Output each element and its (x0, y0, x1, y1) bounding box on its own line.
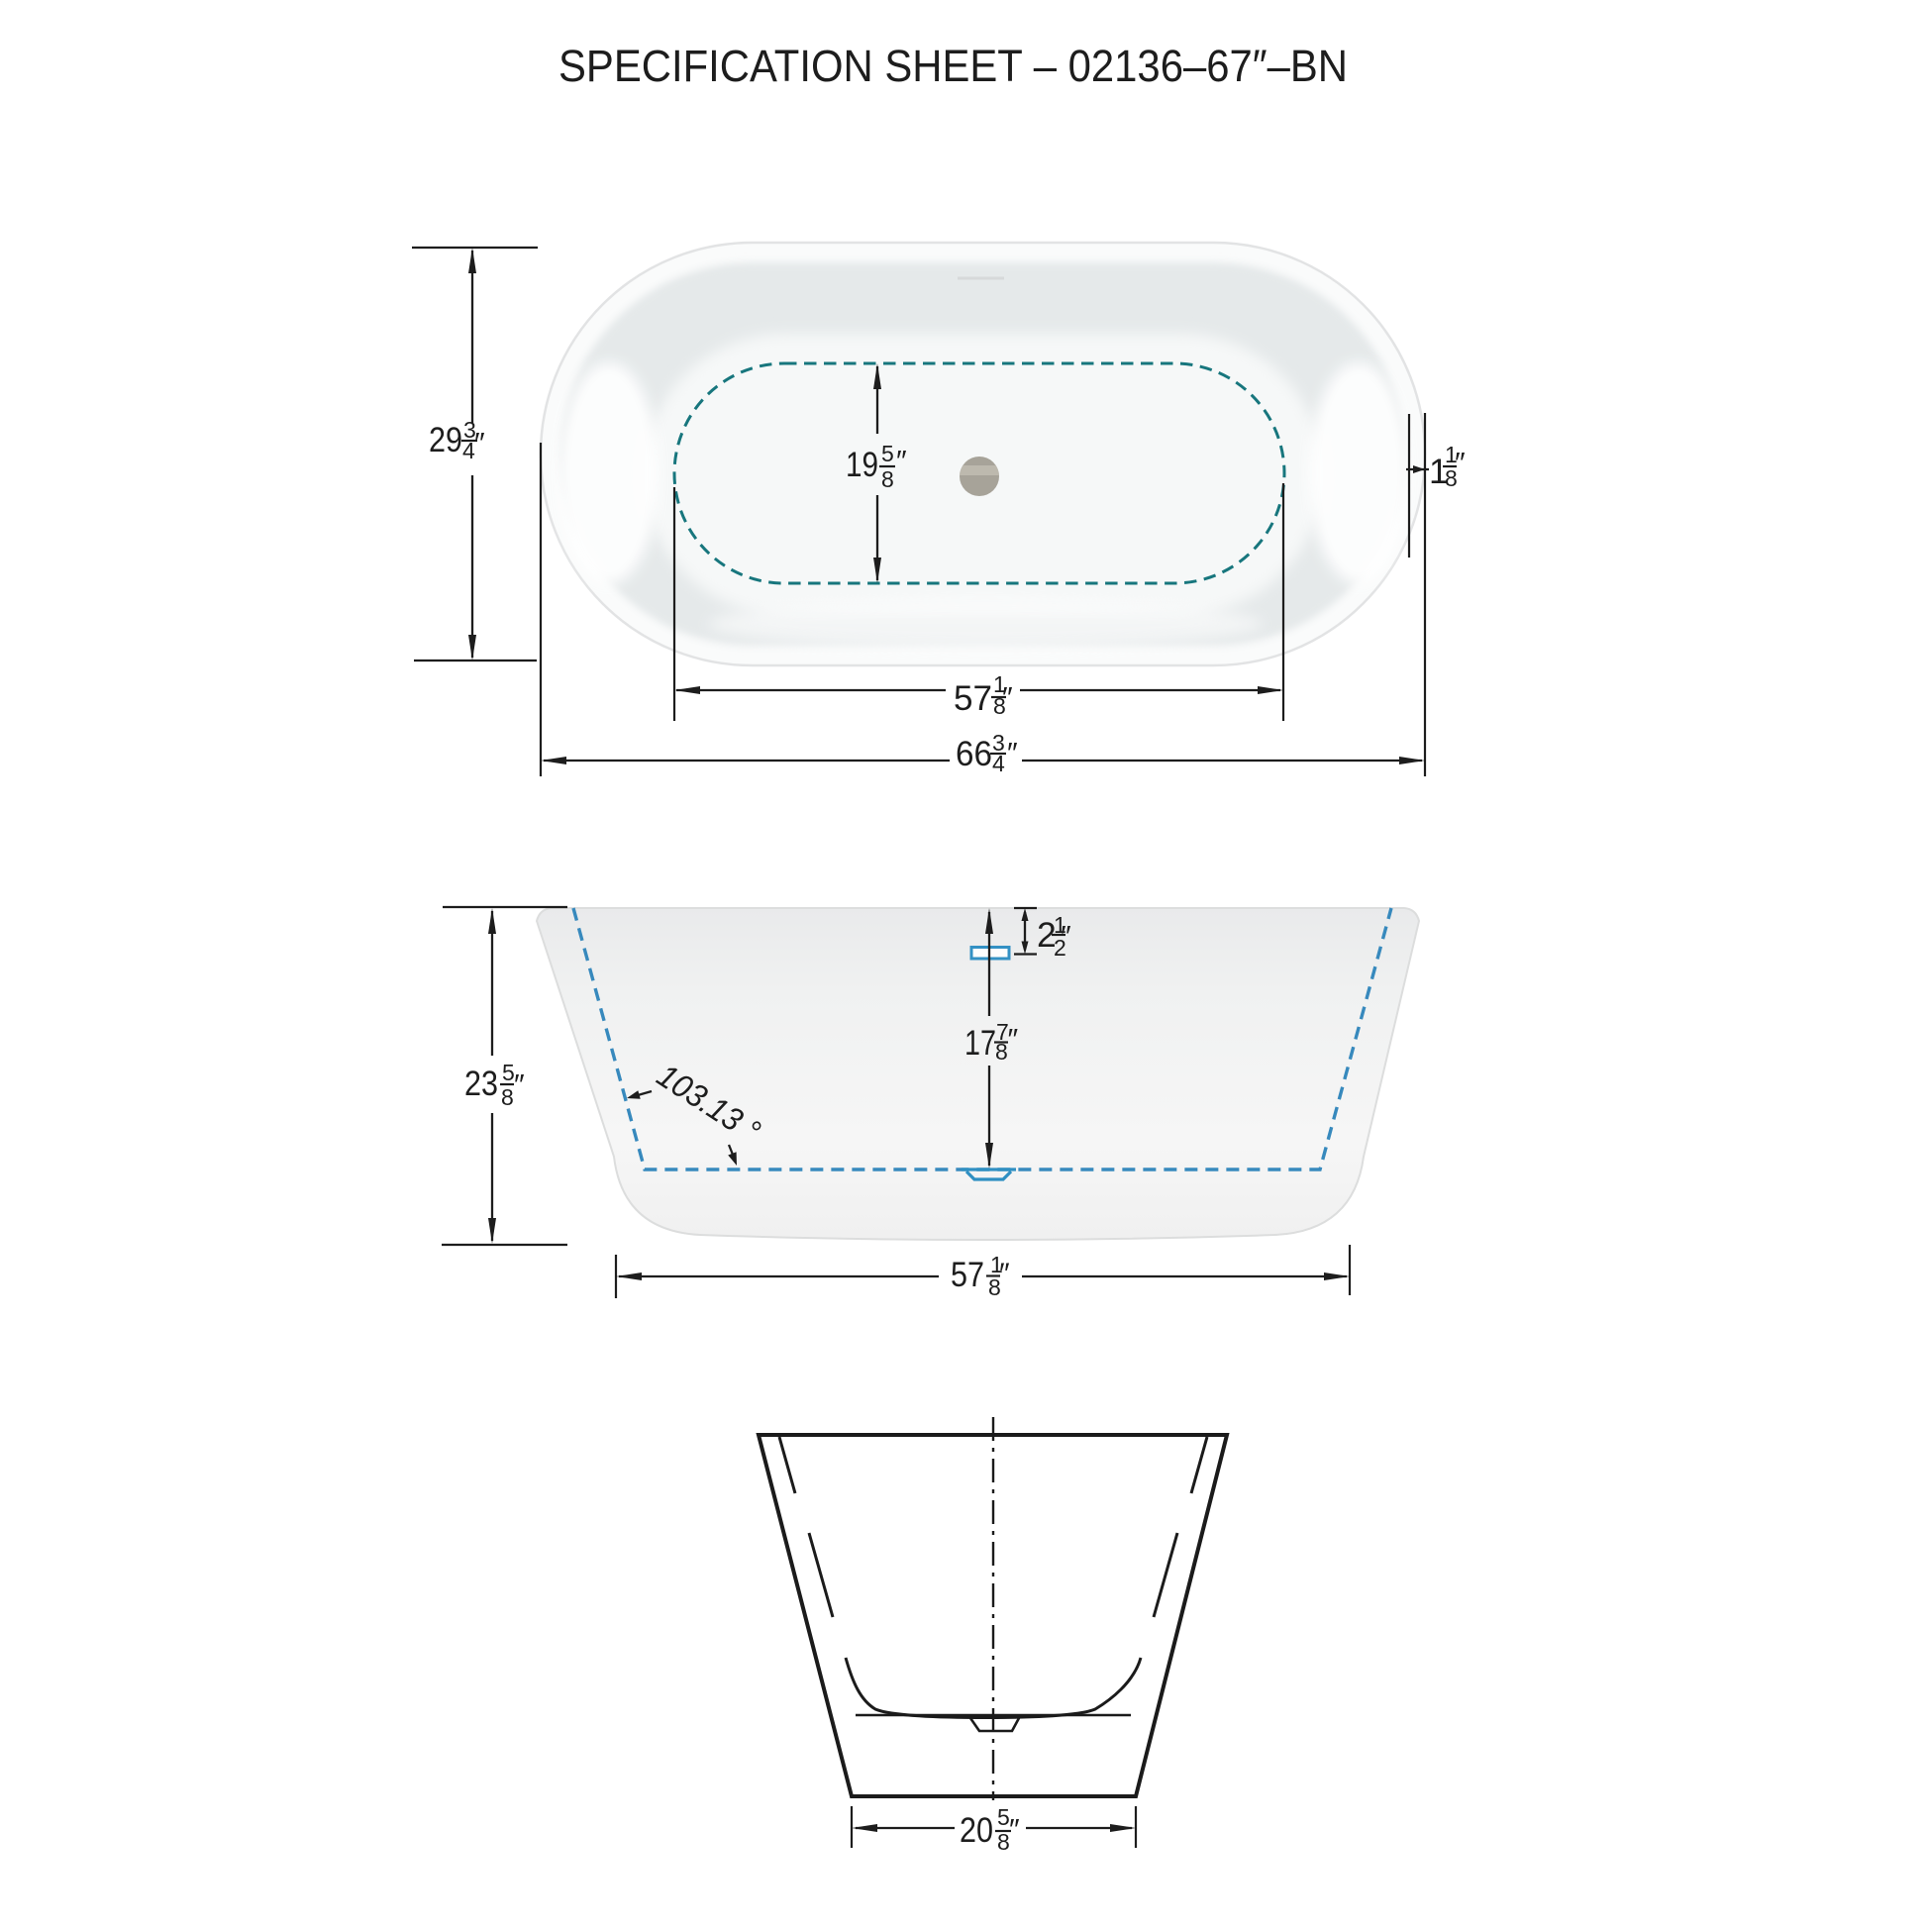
svg-text:″: ″ (1061, 921, 1071, 954)
svg-text:″: ″ (1009, 1814, 1020, 1847)
svg-text:5: 5 (881, 441, 894, 466)
svg-text:8: 8 (995, 1039, 1008, 1065)
svg-text:″: ″ (999, 1258, 1010, 1290)
svg-text:19: 19 (846, 445, 878, 484)
svg-text:″: ″ (896, 446, 907, 478)
svg-text:17: 17 (964, 1023, 996, 1063)
svg-text:″: ″ (474, 428, 485, 460)
svg-text:″: ″ (1002, 682, 1013, 715)
svg-text:29: 29 (429, 420, 462, 459)
svg-text:66: 66 (956, 734, 992, 773)
svg-text:4: 4 (992, 751, 1005, 776)
svg-text:8: 8 (881, 466, 894, 492)
svg-text:8: 8 (501, 1084, 514, 1110)
svg-text:57: 57 (951, 1255, 984, 1294)
svg-text:″: ″ (1007, 738, 1018, 770)
svg-text:5: 5 (997, 1804, 1010, 1830)
svg-text:23: 23 (464, 1064, 498, 1103)
svg-text:SPECIFICATION SHEET – 02136–67: SPECIFICATION SHEET – 02136–67″–BN (558, 41, 1348, 91)
svg-text:8: 8 (997, 1829, 1010, 1855)
svg-text:″: ″ (1008, 1024, 1019, 1057)
svg-text:5: 5 (502, 1060, 515, 1085)
svg-text:″: ″ (514, 1069, 525, 1102)
svg-text:57: 57 (954, 678, 992, 718)
svg-text:″: ″ (1455, 448, 1466, 480)
svg-text:20: 20 (960, 1810, 993, 1850)
